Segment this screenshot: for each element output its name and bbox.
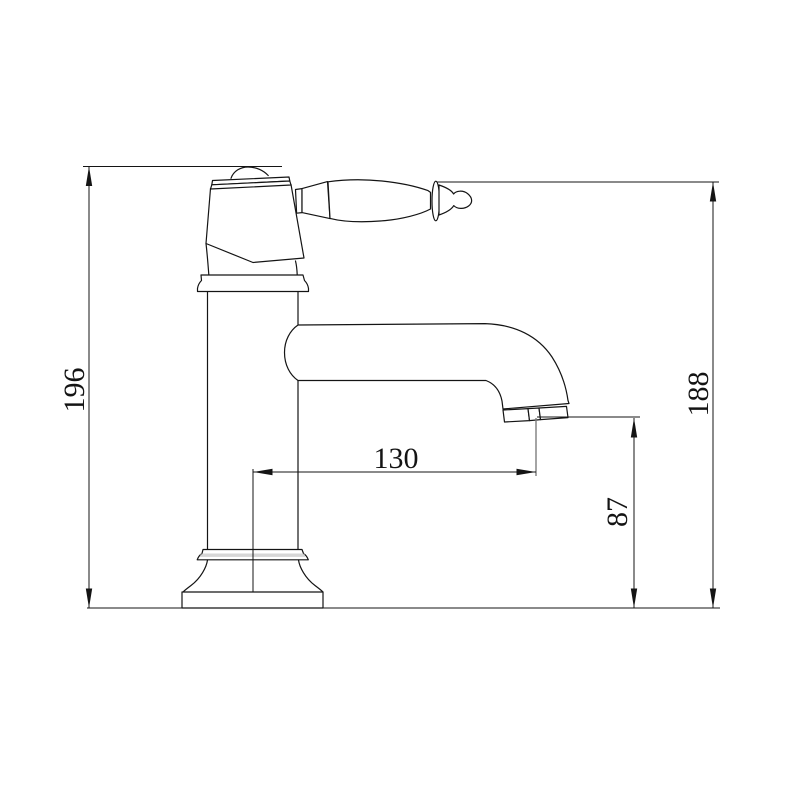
dimension-label-188: 188 — [682, 372, 715, 417]
aerator-segment-left — [503, 409, 530, 422]
base-flare-right — [299, 560, 324, 592]
valve-body-right-lower-edge — [296, 261, 298, 275]
aerator-segment-middle — [528, 408, 541, 421]
arrowhead-87-bottom — [631, 589, 637, 609]
faucet-outline — [182, 167, 569, 608]
handle-knob-tip — [439, 185, 472, 215]
dimension-outlet-height: 87 — [537, 417, 640, 608]
handle-lever — [296, 180, 472, 222]
arrowhead-130-right — [517, 469, 537, 475]
dimension-layer: 196 188 87 130 — [58, 167, 720, 609]
arrowhead-188-bottom — [710, 589, 716, 609]
dimension-label-130: 130 — [374, 442, 419, 475]
arrowhead-196-top — [86, 167, 92, 187]
handle-stub — [296, 189, 303, 214]
faucet-dimension-drawing: 196 188 87 130 — [0, 0, 800, 800]
arrowhead-87-top — [631, 418, 637, 438]
arrowhead-130-left — [253, 469, 273, 475]
valve-body-left-lower-edge — [206, 244, 209, 275]
base-plate — [182, 592, 323, 608]
aerator-segment-right — [539, 406, 568, 419]
arrowhead-196-bottom — [86, 589, 92, 609]
dimension-label-87: 87 — [601, 497, 634, 527]
dimension-label-196: 196 — [58, 368, 91, 413]
valve-body — [206, 185, 304, 263]
arrowhead-188-top — [710, 182, 716, 202]
spout — [285, 324, 570, 409]
base-flare-left — [183, 560, 208, 592]
handle-baluster — [328, 180, 431, 222]
dimension-handle-tip-height: 188 — [437, 182, 719, 608]
handle-ferrule — [302, 182, 330, 219]
dimension-spout-reach: 130 — [253, 418, 536, 592]
technical-drawing-page: 196 188 87 130 — [0, 0, 800, 800]
upper-collar — [198, 275, 309, 292]
cap-dome — [231, 167, 268, 178]
